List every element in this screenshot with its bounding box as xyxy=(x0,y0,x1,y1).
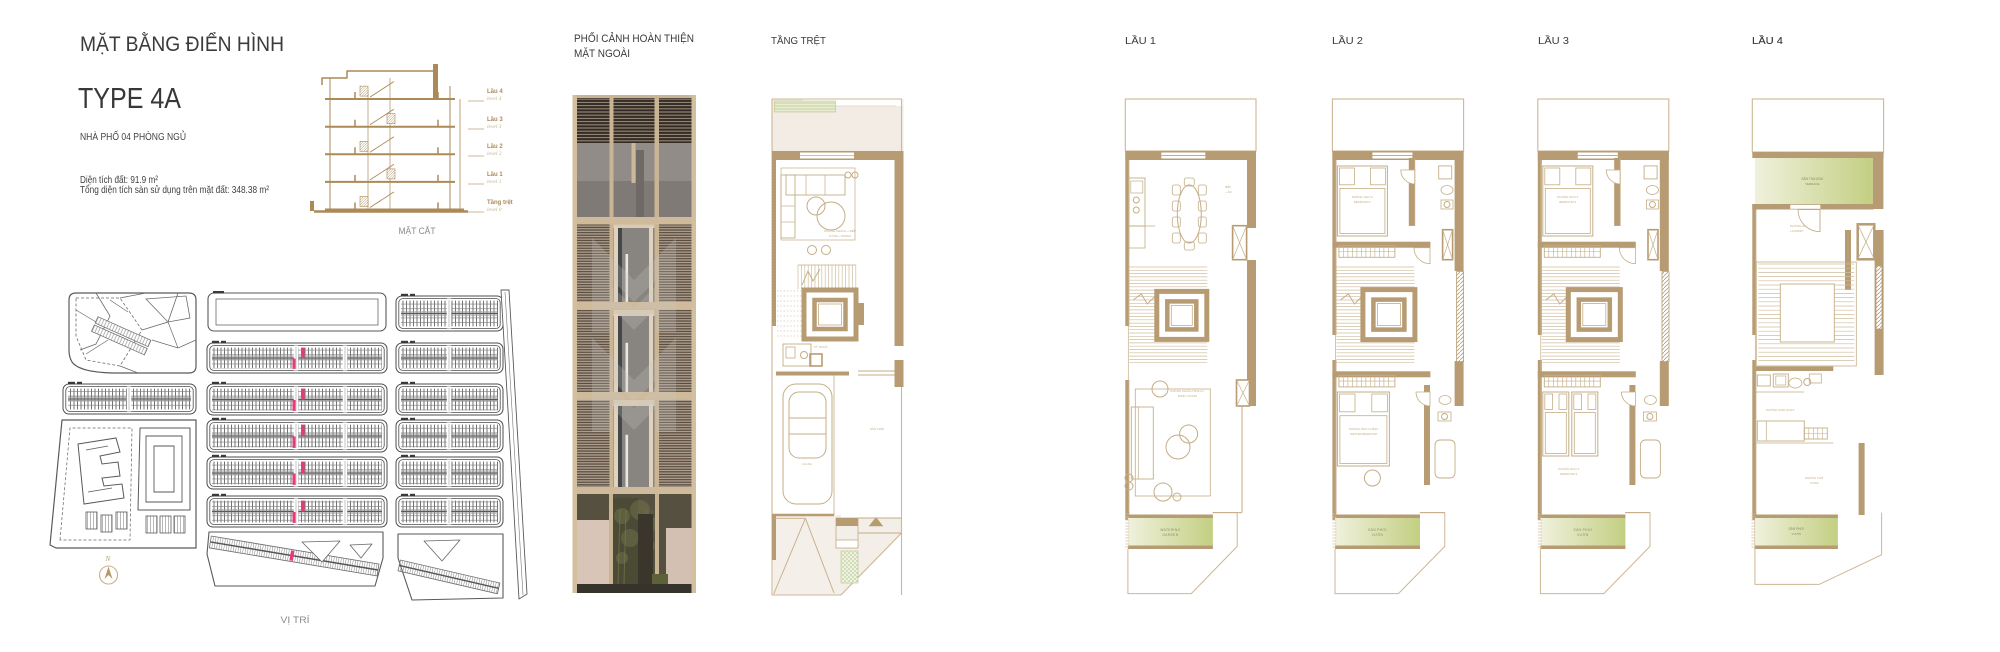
svg-text:PHÒNG NGỦ 3: PHÒNG NGỦ 3 xyxy=(1557,194,1578,199)
svg-text:PHÒNG THỜ: PHÒNG THỜ xyxy=(1805,475,1824,480)
svg-text:VỊ TRÍ: VỊ TRÍ xyxy=(281,615,310,626)
svg-text:TYPE 4A: TYPE 4A xyxy=(78,83,182,115)
svg-text:+ ĂN: + ĂN xyxy=(1225,190,1231,194)
svg-text:level 4: level 4 xyxy=(487,95,502,102)
svg-text:TERRACE: TERRACE xyxy=(1805,182,1819,186)
svg-text:Lầu 1: Lầu 1 xyxy=(487,172,503,178)
svg-text:LẦU 2: LẦU 2 xyxy=(1332,34,1363,47)
svg-text:PHÒNG SINH HOẠT: PHÒNG SINH HOẠT xyxy=(1766,407,1794,412)
svg-text:N: N xyxy=(105,555,111,563)
svg-text:level 1: level 1 xyxy=(487,179,502,185)
svg-text:VƯỜN: VƯỜN xyxy=(1792,531,1801,536)
svg-text:SÂN TRỜI: SÂN TRỜI xyxy=(870,426,885,431)
svg-text:SÂN THƯỢNG: SÂN THƯỢNG xyxy=(1801,177,1823,181)
svg-text:BEDROOM 2: BEDROOM 2 xyxy=(1354,200,1371,204)
svg-text:level 3: level 3 xyxy=(487,124,502,130)
svg-text:PHỐI CẢNH HOÀN THIỆN: PHỐI CẢNH HOÀN THIỆN xyxy=(574,31,694,45)
svg-text:Lầu 2: Lầu 2 xyxy=(487,144,503,150)
svg-text:Tầng trệt: Tầng trệt xyxy=(487,200,513,206)
svg-text:LIVING + DINING: LIVING + DINING xyxy=(829,234,851,238)
svg-text:LAUNDRY: LAUNDRY xyxy=(1790,229,1803,233)
svg-text:PHÒNG KHÁCH SINH H.: PHÒNG KHÁCH SINH H. xyxy=(1170,388,1204,393)
svg-text:PHÒNG NGỦ 4: PHÒNG NGỦ 4 xyxy=(1558,466,1579,471)
svg-text:ALTAR: ALTAR xyxy=(1810,481,1819,485)
svg-text:LẦU 4: LẦU 4 xyxy=(1752,34,1783,47)
svg-text:BẾP: BẾP xyxy=(1225,184,1231,189)
svg-text:LẦU 3: LẦU 3 xyxy=(1538,34,1569,47)
svg-text:PHÒNG NGỦ 2: PHÒNG NGỦ 2 xyxy=(1352,194,1373,199)
svg-text:PHÒNG KHÁCH + BẾP: PHÒNG KHÁCH + BẾP xyxy=(824,228,856,233)
svg-text:MASTER BEDROOM: MASTER BEDROOM xyxy=(1350,432,1378,436)
svg-text:level 0: level 0 xyxy=(487,207,502,213)
svg-text:FAMILY ROOM: FAMILY ROOM xyxy=(1178,394,1198,398)
svg-text:BEDROOM 3: BEDROOM 3 xyxy=(1559,200,1576,204)
svg-text:VƯỜN: VƯỜN xyxy=(1372,532,1384,537)
svg-text:VƯỜN: VƯỜN xyxy=(1577,532,1589,537)
svg-text:SÂN PHƠI: SÂN PHƠI xyxy=(1574,528,1593,532)
svg-text:LẦU 1: LẦU 1 xyxy=(1125,34,1156,47)
svg-text:WATERING: WATERING xyxy=(1160,528,1180,532)
svg-text:NHÀ PHỐ 04 PHÒNG NGỦ: NHÀ PHỐ 04 PHÒNG NGỦ xyxy=(80,129,186,143)
svg-text:KỸ THUẬT: KỸ THUẬT xyxy=(814,344,828,349)
svg-text:TẦNG TRỆT: TẦNG TRỆT xyxy=(771,34,827,47)
svg-text:MẶT NGOÀI: MẶT NGOÀI xyxy=(574,47,630,60)
svg-text:Lầu 3: Lầu 3 xyxy=(487,117,503,123)
svg-text:level 2: level 2 xyxy=(487,151,502,157)
svg-text:SÂN PHƠI: SÂN PHƠI xyxy=(1368,528,1387,532)
svg-text:Lầu 4: Lầu 4 xyxy=(487,89,503,95)
svg-text:MẶT CẮT: MẶT CẮT xyxy=(399,226,436,236)
svg-text:BEDROOM 4: BEDROOM 4 xyxy=(1560,472,1577,476)
svg-text:PHÒNG NGỦ CHÍNH: PHÒNG NGỦ CHÍNH xyxy=(1349,426,1378,431)
svg-text:MẶT BẰNG ĐIỂN HÌNH: MẶT BẰNG ĐIỂN HÌNH xyxy=(80,32,284,56)
svg-text:GA-RA: GA-RA xyxy=(802,462,812,466)
svg-text:SÂN PHƠI: SÂN PHƠI xyxy=(1789,527,1805,531)
svg-text:Tổng diện tích sàn sử dụng trê: Tổng diện tích sàn sử dụng trên mặt đất:… xyxy=(80,184,269,196)
svg-text:GARDEN: GARDEN xyxy=(1162,533,1178,537)
